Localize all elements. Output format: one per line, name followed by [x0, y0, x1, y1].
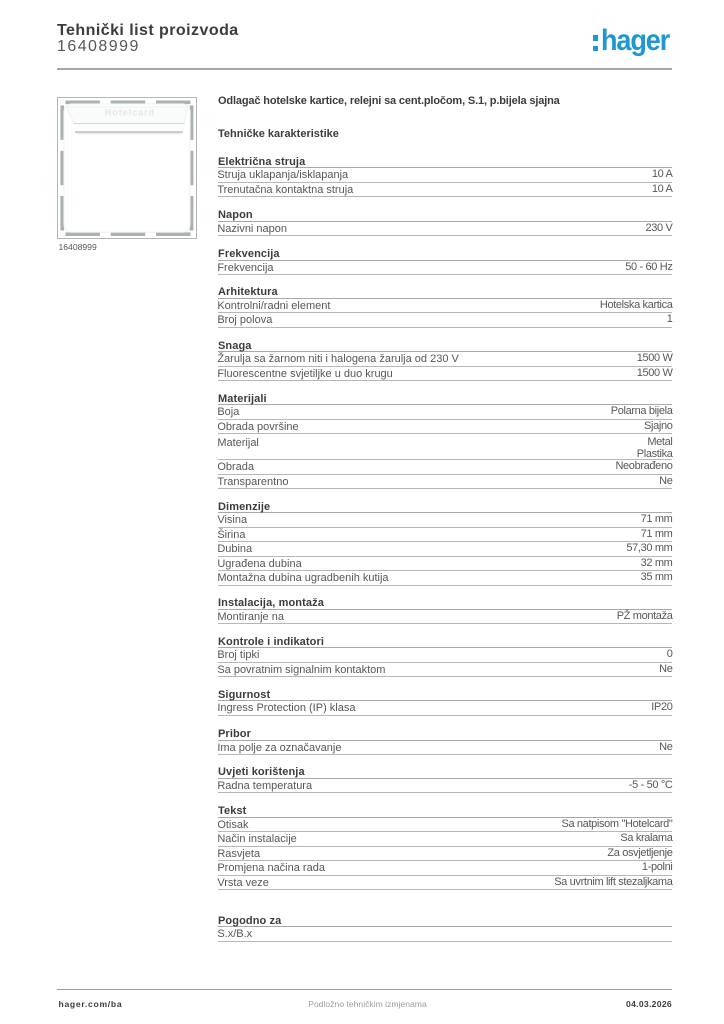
svg-text:Hotelcard: Hotelcard: [105, 107, 156, 117]
